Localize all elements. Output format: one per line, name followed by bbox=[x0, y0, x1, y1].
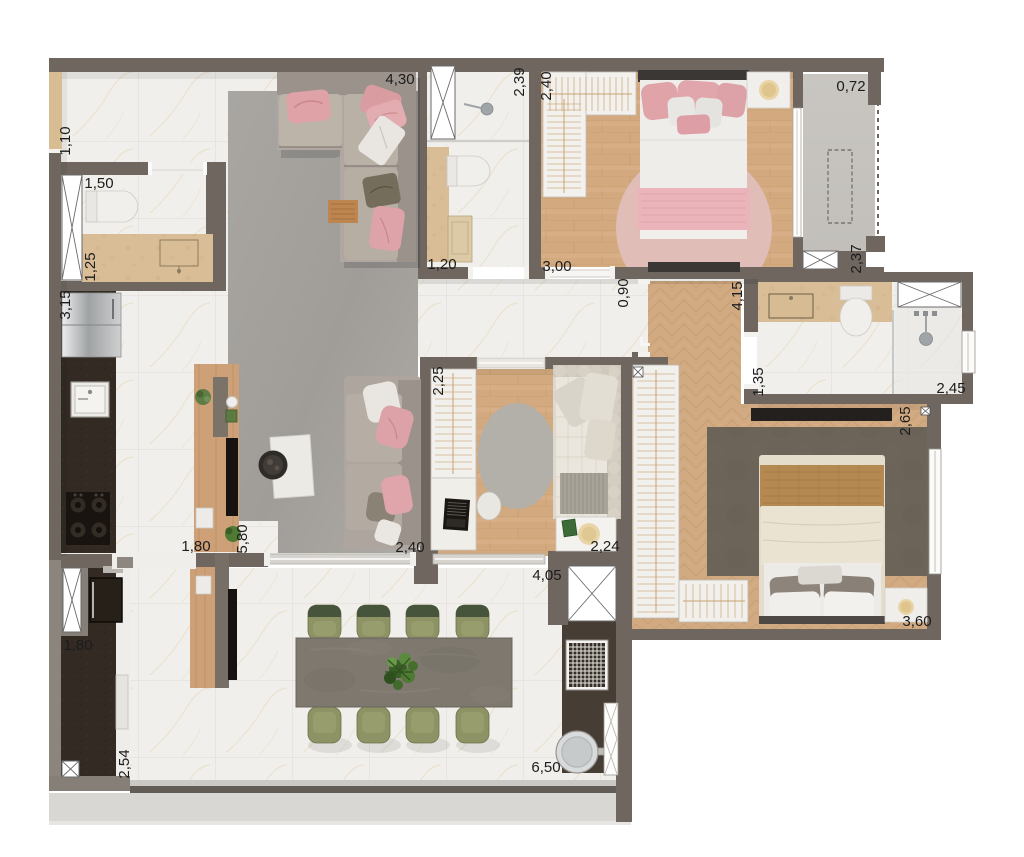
svg-text:3,60: 3,60 bbox=[902, 613, 931, 630]
svg-text:2,39: 2,39 bbox=[511, 67, 528, 96]
svg-text:2,24: 2,24 bbox=[590, 538, 619, 555]
svg-text:2,54: 2,54 bbox=[116, 749, 133, 778]
svg-text:4,05: 4,05 bbox=[532, 567, 561, 584]
svg-text:2,45: 2,45 bbox=[936, 380, 965, 397]
svg-text:2,65: 2,65 bbox=[897, 406, 914, 435]
svg-text:2,37: 2,37 bbox=[848, 244, 865, 273]
svg-text:2,40: 2,40 bbox=[395, 539, 424, 556]
svg-text:6,50: 6,50 bbox=[531, 759, 560, 776]
svg-text:0,90: 0,90 bbox=[615, 278, 632, 307]
svg-text:3,00: 3,00 bbox=[542, 258, 571, 275]
svg-text:0,72: 0,72 bbox=[836, 78, 865, 95]
svg-text:1,10: 1,10 bbox=[57, 126, 74, 155]
svg-text:2,25: 2,25 bbox=[430, 366, 447, 395]
svg-text:4,15: 4,15 bbox=[729, 281, 746, 310]
svg-text:4,30: 4,30 bbox=[385, 71, 414, 88]
svg-text:5,80: 5,80 bbox=[234, 524, 251, 553]
svg-text:1,25: 1,25 bbox=[82, 252, 99, 281]
svg-text:3,15: 3,15 bbox=[57, 290, 74, 319]
svg-text:1,50: 1,50 bbox=[84, 175, 113, 192]
svg-text:1,20: 1,20 bbox=[427, 256, 456, 273]
svg-text:2,40: 2,40 bbox=[538, 71, 555, 100]
svg-text:1,80: 1,80 bbox=[181, 538, 210, 555]
svg-text:1,35: 1,35 bbox=[750, 367, 767, 396]
svg-text:1,80: 1,80 bbox=[63, 637, 92, 654]
